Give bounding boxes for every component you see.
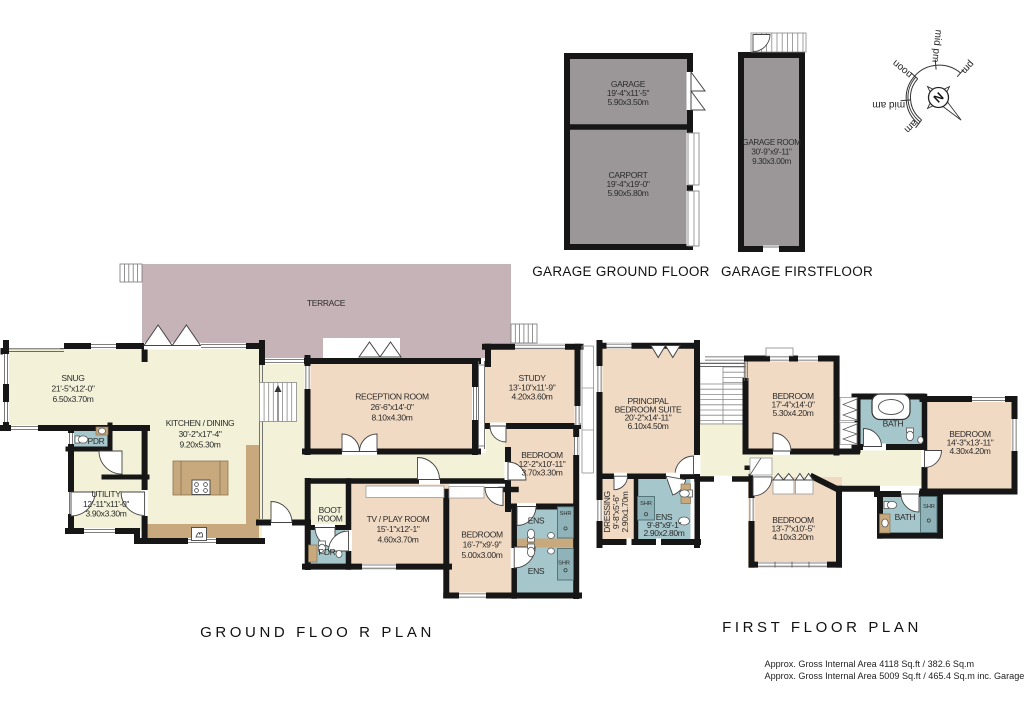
svg-text:4.20x3.60m: 4.20x3.60m [512,392,553,402]
svg-text:30'-2"x17'-4": 30'-2"x17'-4" [178,429,221,439]
svg-text:TV / PLAY ROOM: TV / PLAY ROOM [367,514,430,524]
svg-text:SHR: SHR [558,561,570,567]
svg-text:KITCHEN / DINING: KITCHEN / DINING [166,418,235,428]
svg-text:9.30x3.00m: 9.30x3.00m [752,157,791,166]
svg-text:5.30x4.20m: 5.30x4.20m [773,408,814,418]
svg-text:26'-6"x14'-0": 26'-6"x14'-0" [370,402,413,412]
svg-text:4.60x3.70m: 4.60x3.70m [378,534,419,544]
svg-text:4.30x4.20m: 4.30x4.20m [950,446,991,456]
svg-text:21'-5"x12'-0": 21'-5"x12'-0" [51,384,94,394]
svg-text:5.90x5.80m: 5.90x5.80m [608,188,649,198]
svg-text:BATH: BATH [895,512,916,522]
svg-text:9.20x5.30m: 9.20x5.30m [180,440,221,450]
svg-text:15'-1"x12'-1": 15'-1"x12'-1" [376,524,419,534]
svg-text:6.10x4.50m: 6.10x4.50m [628,421,669,431]
svg-text:SHR: SHR [923,504,935,510]
svg-text:16'-7"x9'-9": 16'-7"x9'-9" [463,540,502,550]
svg-text:PDR: PDR [319,547,336,557]
svg-text:GARAGE FIRSTFLOOR: GARAGE FIRSTFLOOR [721,264,873,279]
svg-text:SHR: SHR [560,511,572,517]
svg-text:8.10x4.30m: 8.10x4.30m [372,413,413,423]
svg-text:ENS: ENS [528,516,545,526]
svg-text:BATH: BATH [883,418,904,428]
svg-text:3.70x3.30m: 3.70x3.30m [522,468,563,478]
svg-text:SHR: SHR [640,501,652,507]
svg-text:ENS: ENS [528,566,545,576]
svg-text:12'-11"x11'-0": 12'-11"x11'-0" [83,499,129,509]
svg-text:TERRACE: TERRACE [307,298,346,308]
svg-text:SNUG: SNUG [61,373,84,383]
svg-text:UTILITY: UTILITY [91,489,121,499]
svg-text:Approx. Gross Internal Area 4: Approx. Gross Internal Area 4118 Sq.ft /… [765,659,975,669]
svg-text:5.00x3.00m: 5.00x3.00m [462,550,503,560]
svg-text:6.50x3.70m: 6.50x3.70m [53,394,94,404]
svg-text:2.90x2.80m: 2.90x2.80m [644,528,685,538]
svg-text:mid am: mid am [872,99,905,110]
svg-text:2.90x1.70m: 2.90x1.70m [620,491,630,532]
svg-text:GROUND FLOO R PLAN: GROUND FLOO R PLAN [200,624,435,641]
svg-text:5.90x3.50m: 5.90x3.50m [608,97,649,107]
svg-text:PDR: PDR [88,436,105,446]
svg-text:30'-9"x9'-11": 30'-9"x9'-11" [751,147,792,156]
svg-text:Approx. Gross Internal Area 5: Approx. Gross Internal Area 5009 Sq.ft /… [765,671,1024,681]
svg-text:GARAGE GROUND FLOOR: GARAGE GROUND FLOOR [532,264,709,279]
svg-text:GARAGE ROOM: GARAGE ROOM [742,138,801,147]
svg-text:ROOM: ROOM [317,514,342,524]
svg-text:BEDROOM: BEDROOM [461,530,503,540]
svg-text:RECEPTION ROOM: RECEPTION ROOM [355,392,429,402]
svg-text:FIRST FLOOR PLAN: FIRST FLOOR PLAN [722,619,922,636]
svg-text:3.90x3.30m: 3.90x3.30m [86,509,127,519]
svg-text:4.10x3.20m: 4.10x3.20m [773,532,814,542]
